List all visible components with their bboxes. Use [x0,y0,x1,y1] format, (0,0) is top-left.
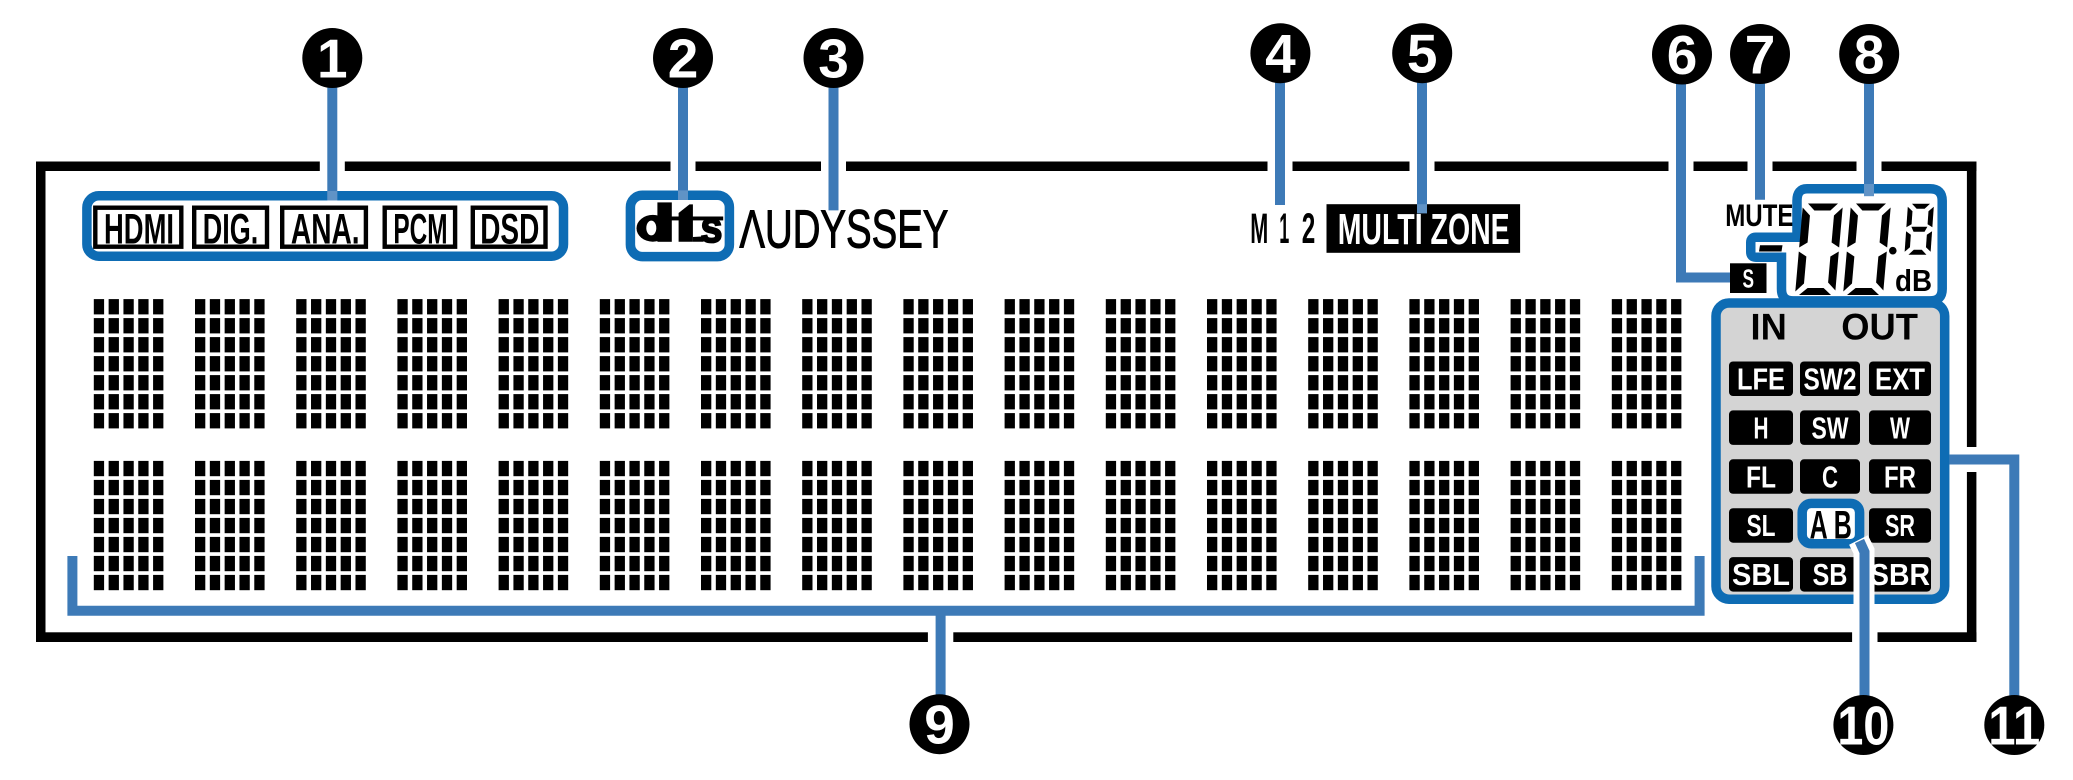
svg-text:6: 6 [1667,24,1698,86]
svg-text:HDMI: HDMI [104,206,174,253]
svg-text:SBR: SBR [1870,557,1930,592]
svg-text:C: C [1822,459,1838,494]
svg-text:FL: FL [1746,459,1776,494]
svg-text:M: M [1250,206,1268,253]
svg-text:1: 1 [317,28,348,90]
svg-text:2: 2 [668,28,699,90]
svg-text:MUTE: MUTE [1725,198,1793,233]
svg-text:SBL: SBL [1732,557,1790,592]
svg-text:S: S [1742,264,1754,294]
svg-text:OUT: OUT [1841,306,1918,347]
svg-text:5: 5 [1407,23,1438,85]
svg-text:W: W [1890,410,1911,445]
svg-text:4: 4 [1265,23,1296,85]
svg-text:8: 8 [1854,24,1885,86]
svg-text:DSD: DSD [480,206,539,253]
svg-text:SW: SW [1812,410,1850,445]
svg-text:SW2: SW2 [1804,362,1857,397]
svg-text:11: 11 [1988,695,2040,757]
svg-text:H: H [1754,410,1769,445]
svg-text:PCM: PCM [393,206,447,253]
svg-text:SL: SL [1747,508,1776,543]
svg-text:s: s [701,203,723,252]
svg-text:ΛUDYSSEY: ΛUDYSSEY [739,200,948,260]
svg-text:IN: IN [1751,306,1787,347]
svg-text:EXT: EXT [1875,362,1925,397]
svg-text:dB: dB [1895,263,1932,298]
svg-text:FR: FR [1884,459,1916,494]
svg-text:SB: SB [1813,557,1848,592]
svg-text:9: 9 [924,694,955,756]
svg-text:LFE: LFE [1737,362,1785,397]
svg-text:ANA.: ANA. [291,206,360,253]
svg-text:A B: A B [1810,503,1852,547]
svg-text:10: 10 [1837,695,1889,757]
svg-text:2: 2 [1302,206,1316,253]
svg-text:3: 3 [818,28,849,90]
svg-text:7: 7 [1745,24,1776,86]
svg-text:SR: SR [1885,508,1915,543]
svg-text:1: 1 [1279,206,1289,253]
svg-text:DIG.: DIG. [203,206,258,253]
